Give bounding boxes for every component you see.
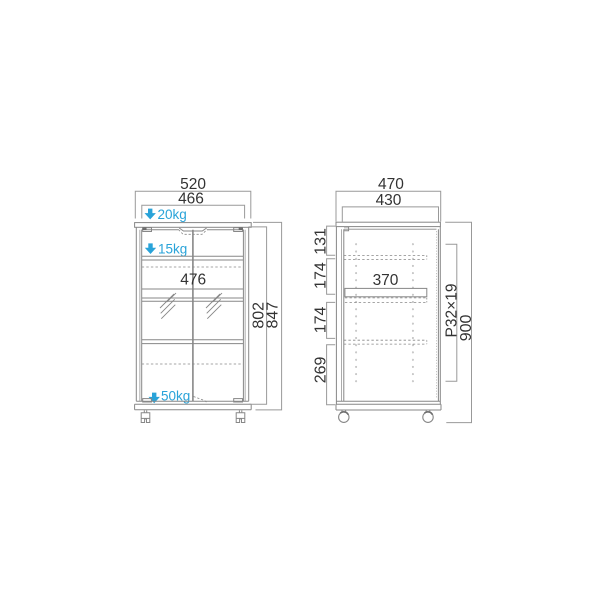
svg-text:470: 470 [378,176,404,193]
svg-text:269: 269 [312,356,329,383]
svg-text:370: 370 [373,272,399,289]
svg-text:131: 131 [312,228,329,255]
svg-text:466: 466 [178,190,204,207]
svg-text:174: 174 [312,306,329,333]
svg-text:430: 430 [376,192,402,209]
svg-text:15kg: 15kg [158,242,187,257]
svg-text:174: 174 [312,262,329,289]
svg-text:20kg: 20kg [158,207,187,222]
svg-text:900: 900 [458,314,475,341]
svg-text:847: 847 [264,302,281,329]
svg-text:476: 476 [180,272,206,289]
